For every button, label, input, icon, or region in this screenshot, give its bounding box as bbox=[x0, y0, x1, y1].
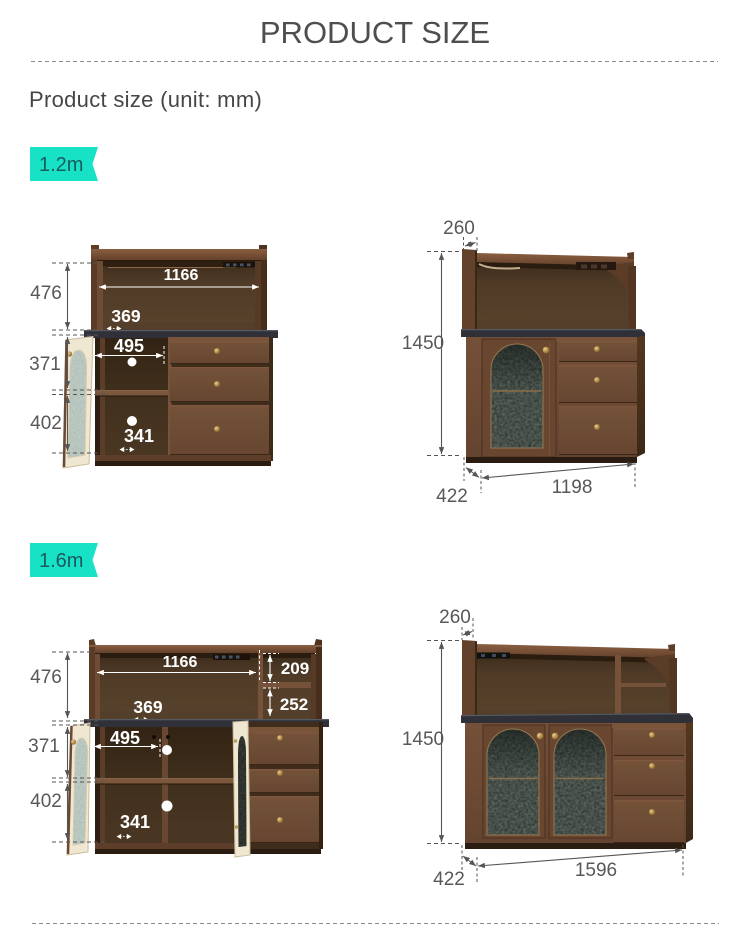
svg-text:1166: 1166 bbox=[163, 654, 198, 671]
svg-text:252: 252 bbox=[280, 695, 308, 714]
svg-text:369: 369 bbox=[133, 697, 162, 717]
svg-text:402: 402 bbox=[30, 791, 62, 812]
svg-text:209: 209 bbox=[281, 659, 309, 678]
svg-text:422: 422 bbox=[433, 869, 465, 890]
svg-text:371: 371 bbox=[29, 354, 61, 375]
svg-text:1450: 1450 bbox=[402, 729, 444, 750]
svg-text:341: 341 bbox=[120, 812, 150, 832]
svg-text:341: 341 bbox=[124, 426, 154, 446]
svg-text:260: 260 bbox=[443, 218, 475, 239]
svg-text:495: 495 bbox=[110, 728, 140, 748]
svg-text:1198: 1198 bbox=[552, 477, 593, 498]
svg-text:422: 422 bbox=[436, 486, 468, 507]
svg-text:495: 495 bbox=[114, 336, 144, 356]
svg-text:402: 402 bbox=[30, 413, 62, 434]
svg-text:476: 476 bbox=[30, 283, 62, 304]
svg-text:1450: 1450 bbox=[402, 333, 444, 354]
svg-text:476: 476 bbox=[30, 667, 62, 688]
svg-text:369: 369 bbox=[111, 306, 140, 326]
svg-text:1166: 1166 bbox=[164, 267, 199, 284]
svg-text:260: 260 bbox=[439, 607, 471, 628]
svg-text:1596: 1596 bbox=[575, 860, 617, 881]
svg-text:371: 371 bbox=[28, 736, 60, 757]
